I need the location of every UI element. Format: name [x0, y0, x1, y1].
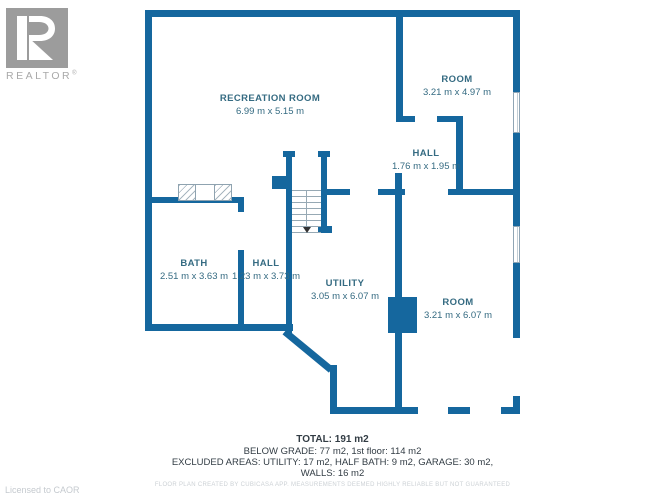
summary-disclaimer: FLOOR PLAN CREATED BY CUBICASA APP. MEAS… — [120, 482, 545, 488]
room-label-room-lower: ROOM 3.21 m x 6.07 m — [398, 296, 518, 322]
wall-segment — [330, 365, 337, 413]
wall-segment — [145, 10, 520, 17]
room-dimensions: 1.76 m x 1.95 m — [366, 160, 486, 173]
area-summary: TOTAL: 191 m2 BELOW GRADE: 77 m2, 1st fl… — [120, 434, 545, 488]
realtor-logo-icon — [6, 8, 68, 68]
room-dimensions: 6.99 m x 5.15 m — [170, 105, 370, 118]
wall-segment — [325, 189, 350, 195]
wall-segment — [501, 407, 520, 414]
stair-runner-line — [306, 190, 307, 228]
room-label-room-upper: ROOM 3.21 m x 4.97 m — [397, 73, 517, 99]
room-name: UTILITY — [285, 277, 405, 290]
room-dimensions: 3.05 m x 6.07 m — [285, 290, 405, 303]
room-dimensions: 3.21 m x 6.07 m — [398, 309, 518, 322]
summary-total: TOTAL: 191 m2 — [120, 434, 545, 446]
realtor-logo — [6, 8, 68, 73]
room-name: HALL — [206, 257, 326, 270]
hatch-pattern — [214, 185, 231, 200]
wall-segment — [513, 133, 520, 226]
door-jamb — [318, 151, 330, 157]
room-label-recreation-room: RECREATION ROOM 6.99 m x 5.15 m — [170, 92, 370, 118]
door-jamb — [283, 151, 295, 157]
license-text: Licensed to CAOR — [5, 485, 80, 495]
summary-walls: WALLS: 16 m2 — [120, 468, 545, 479]
diagonal-wall-segment — [283, 329, 334, 373]
room-label-hall-upper: HALL 1.76 m x 1.95 m — [366, 147, 486, 173]
room-dimensions: 3.21 m x 4.97 m — [397, 86, 517, 99]
room-name: ROOM — [397, 73, 517, 86]
wall-stub — [272, 176, 286, 189]
wall-segment — [238, 197, 244, 212]
realtor-logo-wordmark: REALTOR® — [6, 70, 77, 82]
registered-mark: ® — [72, 71, 76, 77]
floor-plan-page: REALTOR® — [0, 0, 667, 500]
room-name: ROOM — [398, 296, 518, 309]
summary-excluded: EXCLUDED AREAS: UTILITY: 17 m2, HALF BAT… — [120, 457, 545, 468]
wall-segment — [330, 407, 418, 414]
room-label-utility: UTILITY 3.05 m x 6.07 m — [285, 277, 405, 303]
wall-segment — [286, 151, 292, 333]
hatched-area-symbol — [178, 184, 232, 201]
hatch-pattern — [179, 185, 196, 200]
summary-below-grade: BELOW GRADE: 77 m2, 1st floor: 114 m2 — [120, 446, 545, 457]
window-symbol — [513, 226, 520, 263]
stair-direction-arrow-icon — [303, 227, 311, 233]
wall-stub — [396, 116, 415, 122]
room-name: HALL — [366, 147, 486, 160]
wall-segment — [145, 324, 293, 331]
room-name: RECREATION ROOM — [170, 92, 370, 105]
wall-segment — [396, 16, 403, 122]
dashed-opening-segment — [448, 407, 470, 414]
